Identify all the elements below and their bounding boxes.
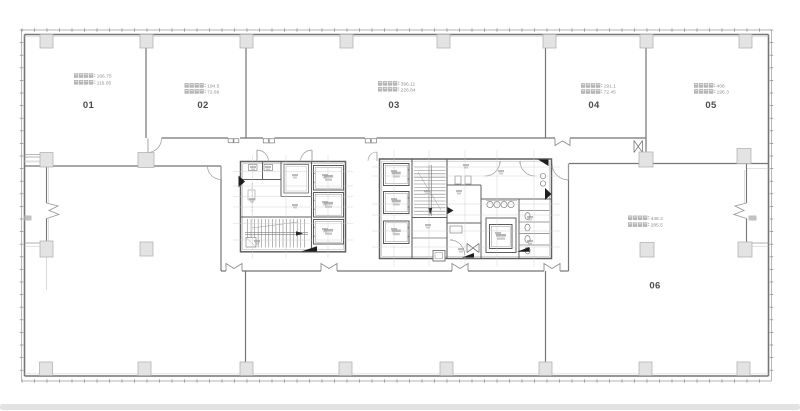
svg-text:72.69: 72.69 (207, 90, 220, 96)
svg-text:06: 06 (649, 281, 660, 292)
svg-text:448.2: 448.2 (651, 216, 664, 222)
svg-text:396.11: 396.11 (401, 82, 416, 88)
svg-text:196.3: 196.3 (717, 90, 730, 96)
svg-text:05: 05 (705, 100, 717, 111)
svg-text:191.1: 191.1 (604, 84, 617, 90)
svg-text:04: 04 (588, 100, 600, 111)
svg-text:02: 02 (197, 100, 208, 111)
svg-text:194.5: 194.5 (207, 84, 220, 90)
svg-text:226.84: 226.84 (401, 87, 416, 93)
svg-text:408: 408 (717, 84, 725, 90)
svg-text:285.5: 285.5 (651, 223, 664, 229)
svg-text:01: 01 (83, 100, 95, 111)
svg-text:116.05: 116.05 (97, 80, 112, 86)
svg-text:166.75: 166.75 (97, 74, 112, 80)
svg-text:72.45: 72.45 (604, 90, 617, 96)
svg-text:03: 03 (388, 100, 399, 111)
